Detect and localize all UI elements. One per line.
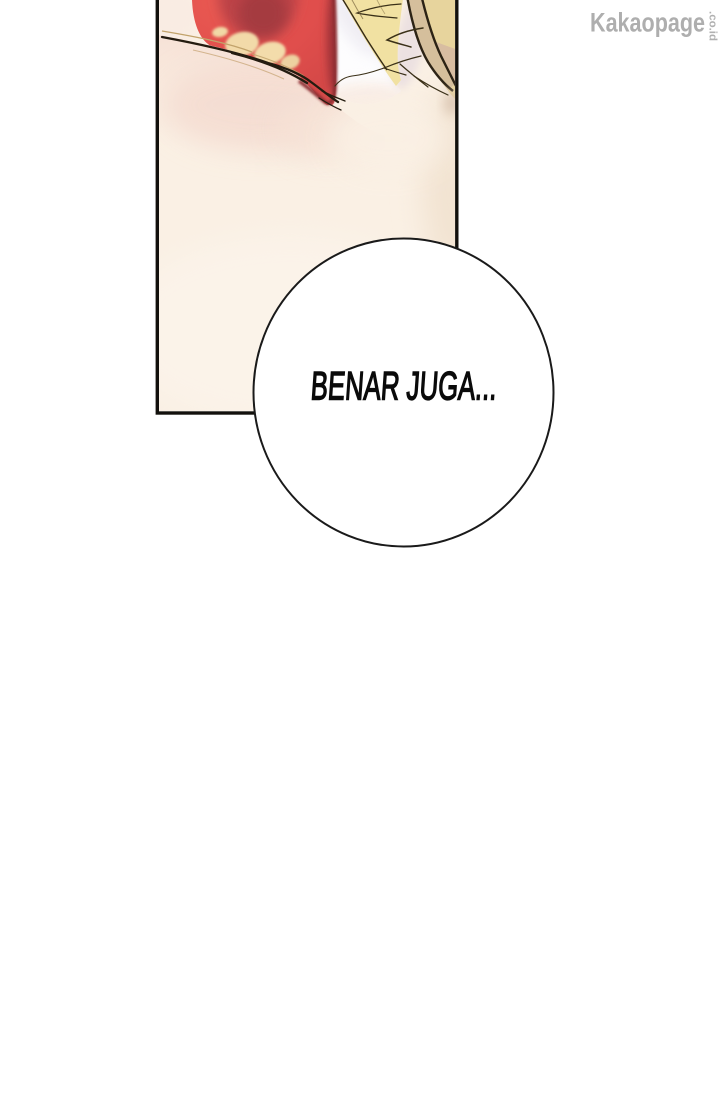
svg-text:Kakaopage: Kakaopage: [590, 8, 705, 38]
svg-text:.co.id: .co.id: [707, 11, 719, 41]
svg-text:BENAR JUGA...: BENAR JUGA...: [309, 365, 498, 409]
